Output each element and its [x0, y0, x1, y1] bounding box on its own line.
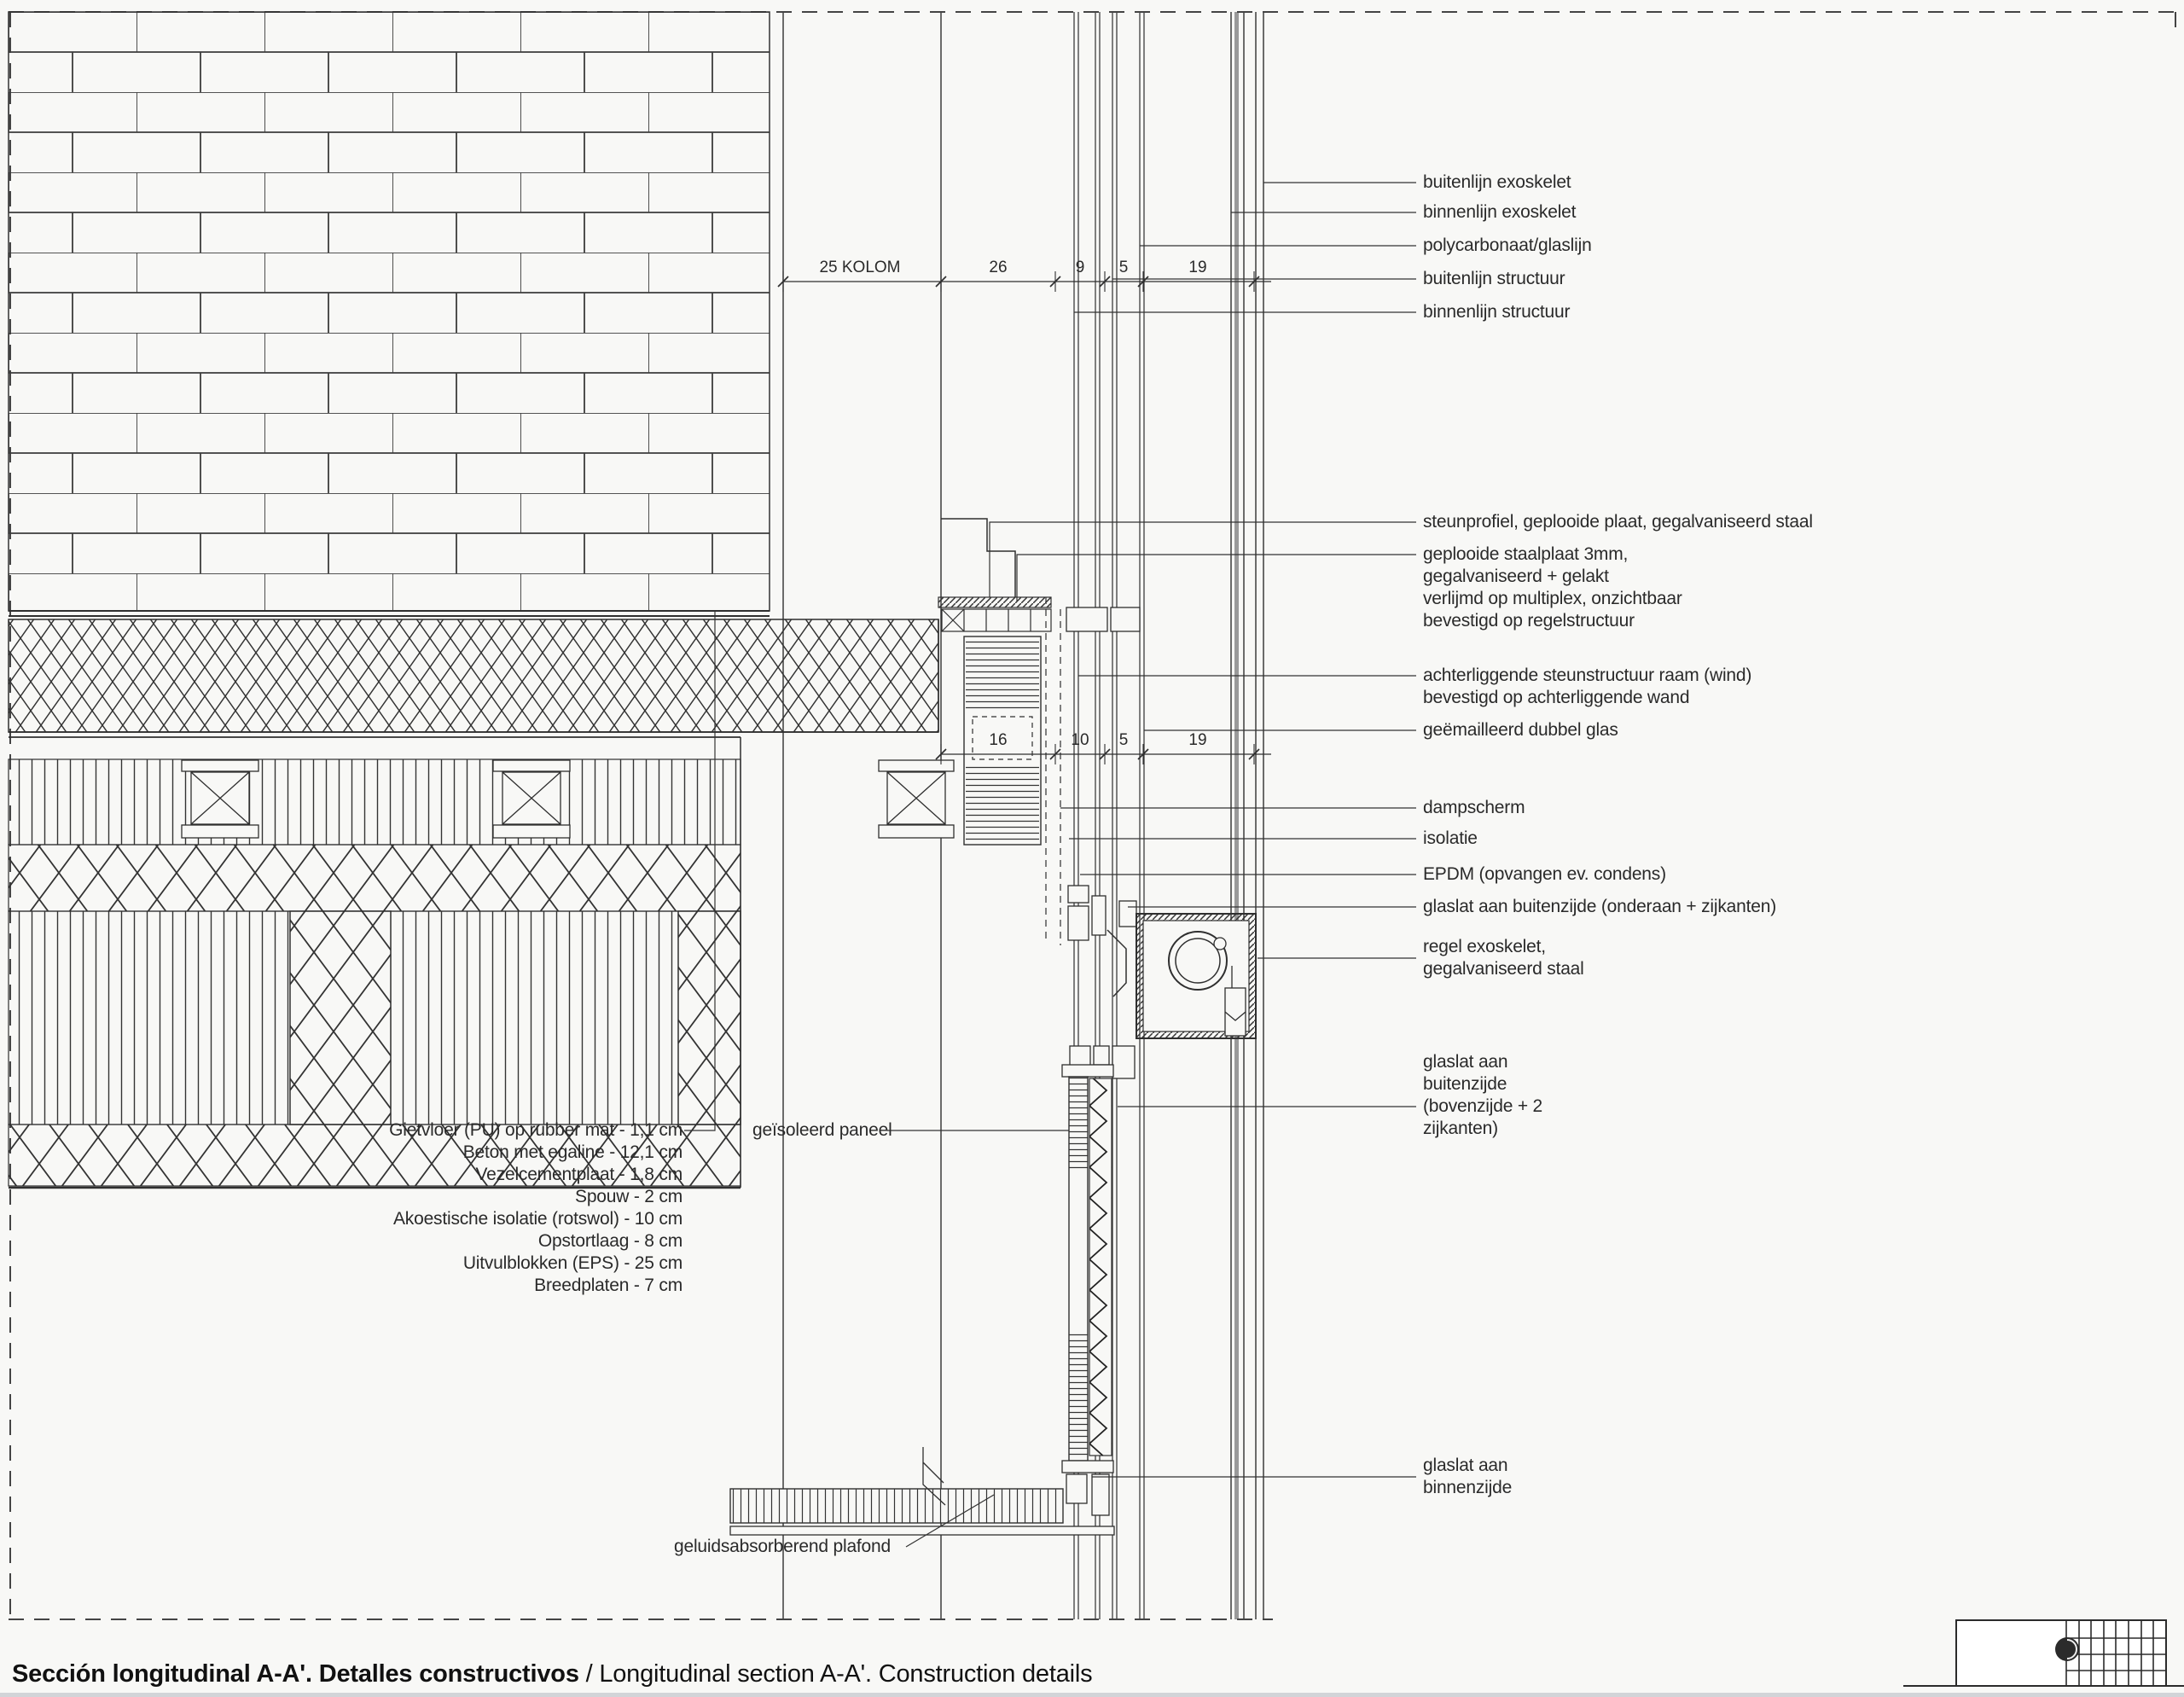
- label-floor-layer: Vezelcementplaat - 1,8 cm: [358, 1164, 682, 1186]
- label-steunprofiel: steunprofiel, geplooide plaat, gegalvani…: [1423, 511, 1813, 533]
- label-polycarbonaat-glaslijn: polycarbonaat/glaslijn: [1423, 235, 1592, 257]
- brick-wall: [9, 12, 770, 616]
- dim-mid-10: 10: [1071, 731, 1089, 750]
- label-geplooide-staalplaat: bevestigd op regelstructuur: [1423, 610, 1635, 632]
- label-regel-exoskelet: regel exoskelet,: [1423, 936, 1546, 958]
- sheet-title-primary: Sección longitudinal A-A'. Detalles cons…: [12, 1660, 579, 1688]
- screed-layer: [9, 619, 938, 732]
- label-floor-layer: Opstortlaag - 8 cm: [358, 1230, 682, 1252]
- dim-mid-16: 16: [989, 731, 1007, 750]
- label-geemailleerd-dubbel-glas: geëmailleerd dubbel glas: [1423, 719, 1618, 741]
- dim-top-kolom: 25 KOLOM: [819, 259, 900, 277]
- footer-rule: [0, 1693, 2184, 1697]
- label-achterliggende-steunstructuur: achterliggende steunstructuur raam (wind…: [1423, 665, 1751, 687]
- key-plan: [1903, 1620, 2184, 1686]
- label-isolatie: isolatie: [1423, 828, 1478, 850]
- label-glaslat-buitenzijde-boven: buitenzijde: [1423, 1073, 1507, 1095]
- sheet-title-secondary: Longitudinal section A-A'. Construction …: [599, 1660, 1092, 1688]
- mullion-fittings: [1066, 607, 1140, 997]
- leader-lines: [684, 183, 1416, 1547]
- label-floor-layer: Uitvulblokken (EPS) - 25 cm: [358, 1252, 682, 1275]
- sheet-title: Sección longitudinal A-A'. Detalles cons…: [12, 1660, 1092, 1688]
- label-binnenlijn-structuur: binnenlijn structuur: [1423, 301, 1570, 323]
- label-glaslat-buitenzijde-onderaan: glaslat aan buitenzijde (onderaan + zijk…: [1423, 896, 1776, 918]
- label-floor-layer: Spouw - 2 cm: [358, 1186, 682, 1208]
- dim-top-26: 26: [989, 259, 1007, 277]
- exoskeleton-lines: [1231, 12, 1263, 1619]
- label-regel-exoskelet: gegalvaniseerd staal: [1423, 958, 1584, 980]
- label-floor-layer: Gietvloer (PU) op rubber mat - 1,1 cm: [358, 1119, 682, 1142]
- dim-top-19: 19: [1188, 259, 1206, 277]
- topping-layer: [9, 845, 741, 911]
- label-dampscherm: dampscherm: [1423, 797, 1525, 819]
- label-geplooide-staalplaat: gegalvaniseerd + gelakt: [1423, 566, 1609, 588]
- profiled-sheet: [1089, 1078, 1112, 1456]
- label-buitenlijn-structuur: buitenlijn structuur: [1423, 268, 1565, 290]
- dim-top-9: 9: [1076, 259, 1085, 277]
- label-floor-layer: Akoestische isolatie (rotswol) - 10 cm: [358, 1208, 682, 1230]
- label-glaslat-buitenzijde-boven: glaslat aan: [1423, 1051, 1507, 1073]
- label-glaslat-binnenzijde: binnenzijde: [1423, 1477, 1512, 1499]
- sheet-title-separator: /: [579, 1660, 600, 1688]
- location-marker-icon: [2055, 1637, 2079, 1661]
- label-epdm: EPDM (opvangen ev. condens): [1423, 863, 1666, 886]
- label-geplooide-staalplaat: verlijmd op multiplex, onzichtbaar: [1423, 588, 1682, 610]
- label-glaslat-binnenzijde: glaslat aan: [1423, 1455, 1507, 1477]
- label-geluidsabsorberend-plafond: geluidsabsorberend plafond: [674, 1536, 891, 1558]
- label-geplooide-staalplaat: geplooide staalplaat 3mm,: [1423, 543, 1628, 566]
- drawing-sheet: buitenlijn exoskelet binnenlijn exoskele…: [0, 0, 2184, 1697]
- insulated-panel: [1062, 1065, 1113, 1515]
- suspended-ceiling: [730, 1447, 1114, 1535]
- dim-mid-5: 5: [1119, 731, 1129, 750]
- dim-mid-19: 19: [1188, 731, 1206, 750]
- label-glaslat-buitenzijde-boven: (bovenzijde + 2: [1423, 1095, 1542, 1118]
- acoustic-insulation-layer: [9, 759, 741, 845]
- dim-top-5: 5: [1119, 259, 1129, 277]
- label-floor-layer: Breedplaten - 7 cm: [358, 1275, 682, 1297]
- label-achterliggende-steunstructuur: bevestigd op achterliggende wand: [1423, 687, 1689, 709]
- label-glaslat-buitenzijde-boven: zijkanten): [1423, 1118, 1498, 1140]
- label-geisoleerd-paneel: geïsoleerd paneel: [752, 1119, 892, 1142]
- construction-drawing: [0, 0, 2184, 1697]
- label-floor-layer: Beton met egaline - 12,1 cm: [358, 1142, 682, 1164]
- exoskeleton-rail-box: [1136, 914, 1256, 1038]
- label-buitenlijn-exoskelet: buitenlijn exoskelet: [1423, 171, 1571, 194]
- label-binnenlijn-exoskelet: binnenlijn exoskelet: [1423, 201, 1576, 224]
- floor-assembly: [9, 619, 954, 1188]
